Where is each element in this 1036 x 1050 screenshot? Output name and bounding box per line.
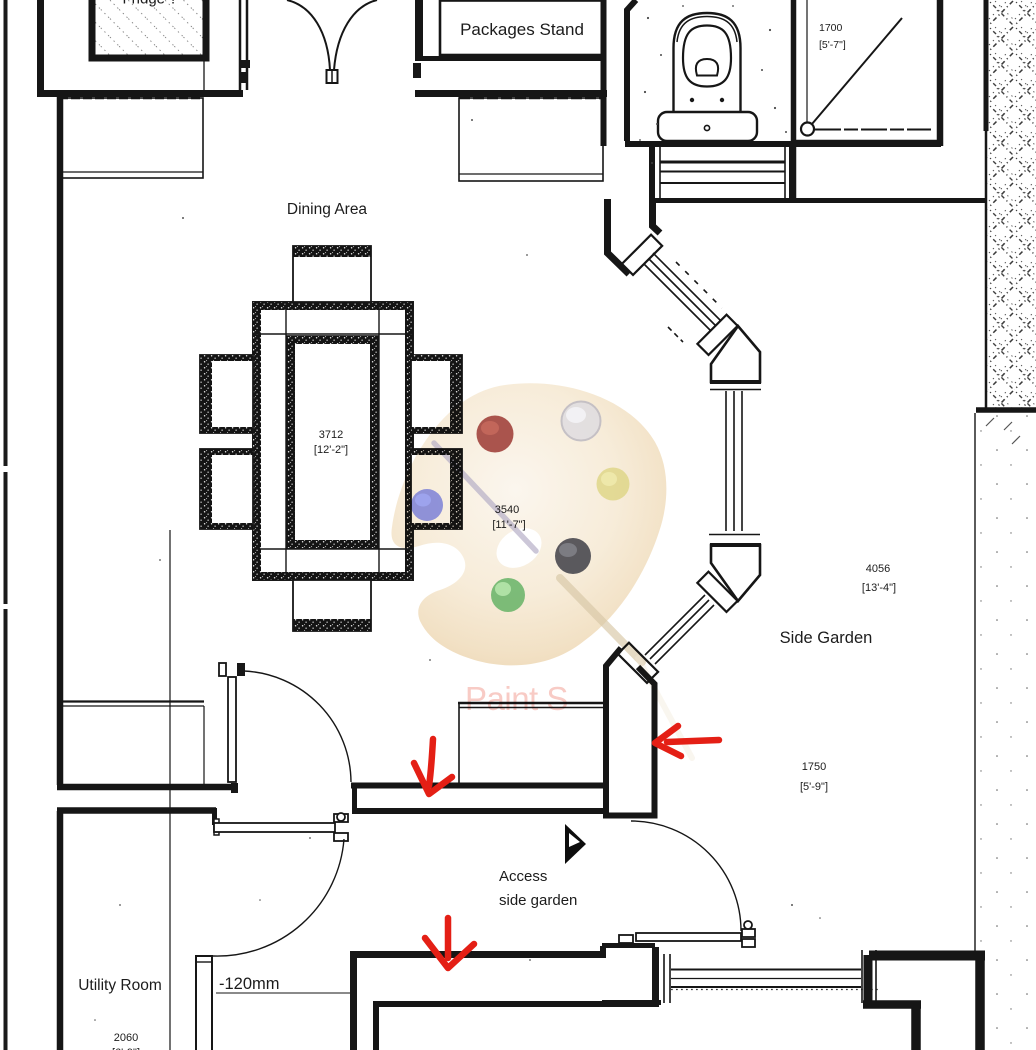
svg-text:[12'-2"]: [12'-2"] <box>314 444 348 456</box>
svg-text:2060: 2060 <box>114 1032 138 1044</box>
svg-text:1700: 1700 <box>819 22 843 34</box>
svg-text:4056: 4056 <box>866 563 890 575</box>
svg-text:Side Garden: Side Garden <box>780 629 873 647</box>
svg-text:Fridge ?: Fridge ? <box>122 0 177 8</box>
svg-text:Dining Area: Dining Area <box>287 201 368 218</box>
svg-text:Packages Stand: Packages Stand <box>460 20 584 39</box>
svg-text:1750: 1750 <box>802 761 826 773</box>
svg-text:Utility Room: Utility Room <box>78 977 162 994</box>
svg-text:Access: Access <box>499 868 547 885</box>
svg-text:-120mm: -120mm <box>219 975 280 993</box>
svg-text:[5'-7"]: [5'-7"] <box>819 39 846 51</box>
svg-text:3712: 3712 <box>319 429 343 441</box>
svg-text:Paint S: Paint S <box>465 680 568 717</box>
svg-text:side garden: side garden <box>499 892 577 909</box>
svg-text:[13'-4"]: [13'-4"] <box>862 582 896 594</box>
svg-text:[5'-9"]: [5'-9"] <box>800 781 828 793</box>
